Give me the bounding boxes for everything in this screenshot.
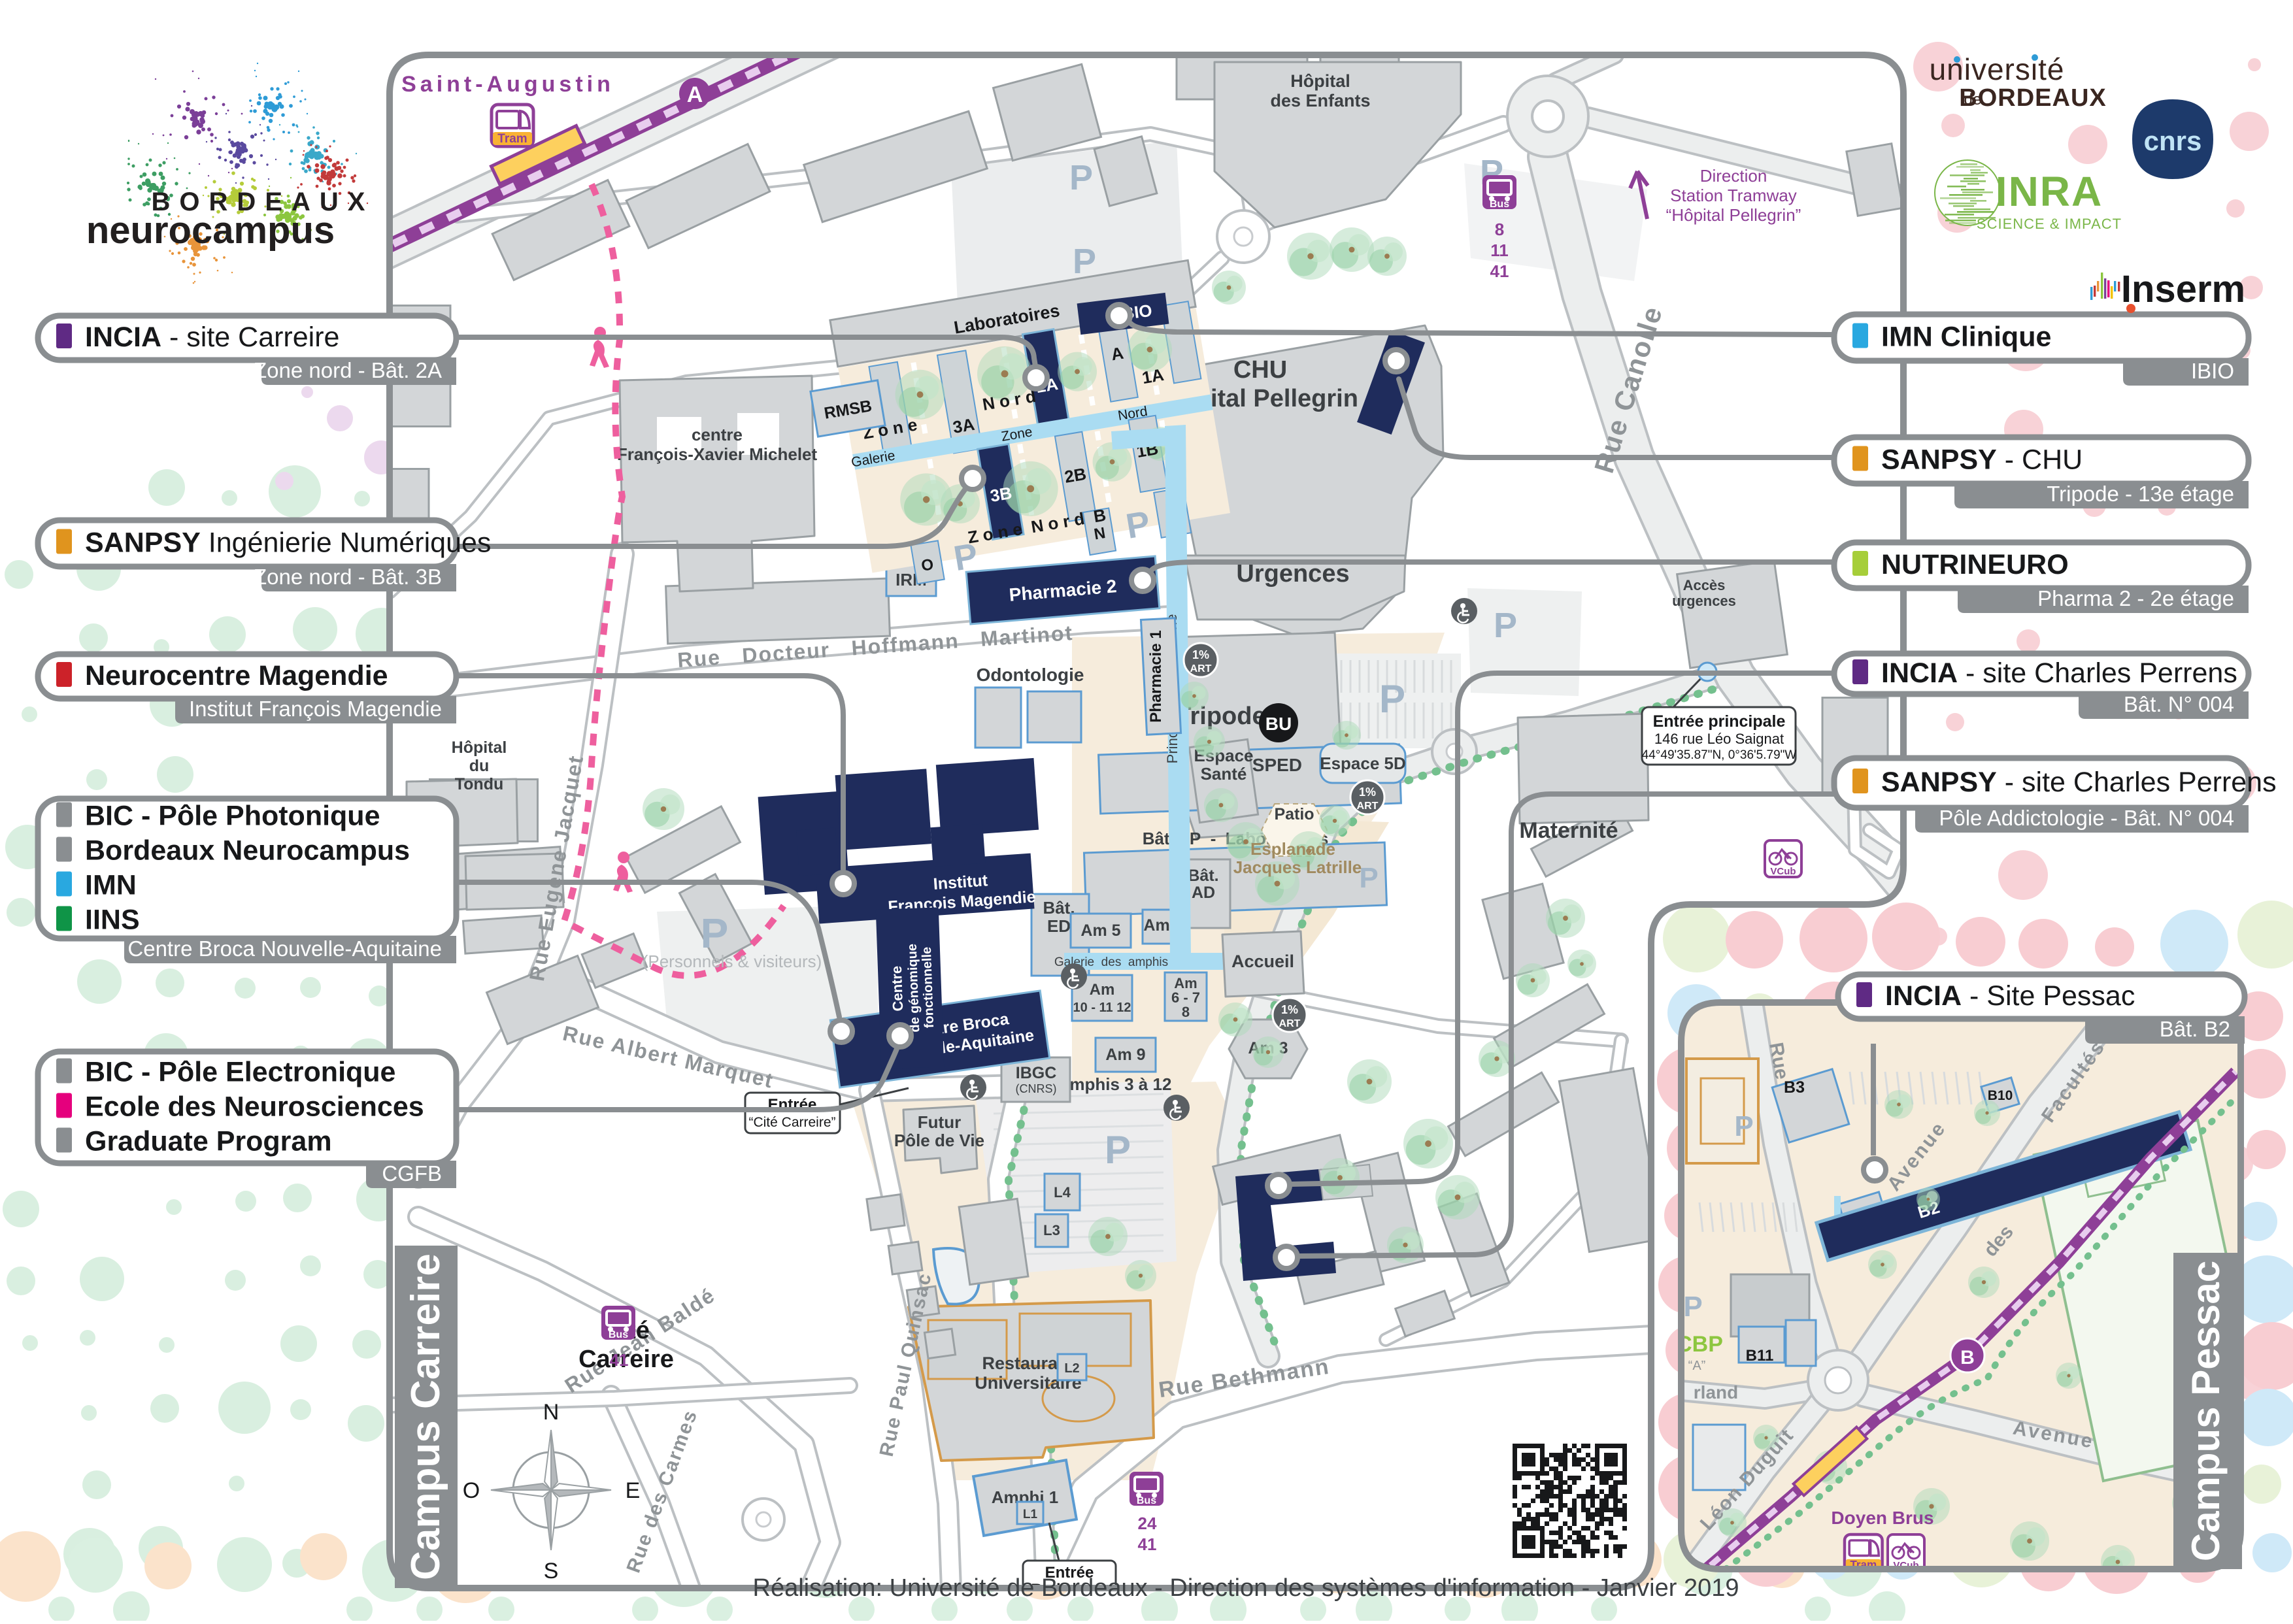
svg-text:Hôpital: Hôpital — [452, 738, 507, 757]
svg-text:8: 8 — [1182, 1004, 1190, 1020]
svg-text:Doyen Brus: Doyen Brus — [1831, 1508, 1933, 1528]
svg-text:Tripode - 13e étage: Tripode - 13e étage — [2047, 482, 2234, 506]
svg-text:L4: L4 — [1054, 1184, 1071, 1201]
svg-text:Neurocentre Magendie: Neurocentre Magendie — [85, 660, 388, 691]
svg-text:Bus: Bus — [609, 1329, 628, 1340]
svg-text:Odontologie: Odontologie — [977, 665, 1084, 685]
svg-text:B11: B11 — [1746, 1347, 1774, 1365]
svg-text:P: P — [1734, 1110, 1753, 1142]
svg-text:François-Xavier Michelet: François-Xavier Michelet — [617, 444, 818, 464]
svg-text:B: B — [1960, 1347, 1975, 1368]
svg-text:Bât. N° 004: Bât. N° 004 — [2124, 692, 2234, 716]
svg-text:(Personnels & visiteurs): (Personnels & visiteurs) — [643, 952, 822, 971]
svg-text:Tondu: Tondu — [455, 775, 504, 793]
svg-text:11: 11 — [1490, 240, 1509, 260]
svg-text:P: P — [1069, 158, 1093, 197]
svg-text:E: E — [626, 1478, 641, 1503]
svg-text:P: P — [1379, 677, 1405, 721]
svg-text:Jacques Latrille: Jacques Latrille — [1233, 857, 1362, 877]
svg-text:Graduate Program: Graduate Program — [85, 1126, 332, 1157]
svg-text:SANPSY - CHU: SANPSY - CHU — [1881, 444, 2083, 476]
svg-text:ART: ART — [1279, 1018, 1301, 1029]
svg-text:ED: ED — [1047, 916, 1071, 936]
svg-text:du: du — [469, 757, 490, 775]
svg-text:1%: 1% — [1281, 1003, 1298, 1016]
svg-text:Patio: Patio — [1274, 805, 1314, 823]
svg-text:S: S — [544, 1559, 559, 1583]
svg-text:Ecole des Neurosciences: Ecole des Neurosciences — [85, 1091, 424, 1123]
svg-text:Amphis 3 à 12: Amphis 3 à 12 — [1058, 1074, 1172, 1094]
svg-text:1%: 1% — [1192, 648, 1209, 661]
svg-text:INCIA - Site Pessac: INCIA - Site Pessac — [1885, 980, 2135, 1012]
svg-text:Am: Am — [1090, 981, 1115, 999]
svg-text:146 rue Léo Saignat: 146 rue Léo Saignat — [1654, 731, 1784, 747]
svg-text:Hôpital: Hôpital — [1290, 71, 1350, 91]
svg-text:INCIA - site Charles Perrens: INCIA - site Charles Perrens — [1881, 657, 2237, 689]
svg-text:SCIENCE & IMPACT: SCIENCE & IMPACT — [1977, 216, 2122, 232]
svg-text:41: 41 — [1490, 261, 1509, 281]
svg-text:P: P — [1494, 606, 1517, 645]
svg-text:Campus Carreire: Campus Carreire — [403, 1253, 448, 1580]
svg-text:Zone nord - Bât. 2A: Zone nord - Bât. 2A — [254, 358, 442, 382]
svg-text:“Hôpital Pellegrin”: “Hôpital Pellegrin” — [1666, 205, 1801, 225]
svg-text:P: P — [1073, 242, 1096, 281]
svg-text:Am 9: Am 9 — [1105, 1046, 1145, 1064]
svg-text:AD: AD — [1192, 884, 1215, 902]
svg-text:rland: rland — [1694, 1382, 1738, 1402]
svg-text:Accueil: Accueil — [1231, 952, 1294, 971]
svg-text:Am 5: Am 5 — [1080, 921, 1120, 940]
svg-text:Pôle Addictologie - Bât. N° 00: Pôle Addictologie - Bât. N° 004 — [1939, 806, 2234, 830]
svg-text:Bus: Bus — [1490, 199, 1509, 210]
svg-text:O: O — [463, 1478, 480, 1503]
svg-text:41: 41 — [1138, 1534, 1157, 1554]
svg-text:VCub: VCub — [1770, 866, 1796, 877]
svg-text:Tram: Tram — [497, 132, 527, 146]
svg-text:P: P — [1105, 1128, 1131, 1172]
svg-text:Esplanade: Esplanade — [1250, 839, 1335, 859]
svg-text:BIC - Pôle Electronique: BIC - Pôle Electronique — [85, 1057, 395, 1088]
svg-text:Bus: Bus — [1137, 1495, 1156, 1506]
svg-text:Station Tramway: Station Tramway — [1670, 186, 1797, 205]
svg-text:Pharmacie 1: Pharmacie 1 — [1147, 630, 1165, 722]
svg-text:Zone nord - Bât. 3B: Zone nord - Bât. 3B — [254, 565, 442, 589]
svg-text:SANPSY Ingénierie Numériques: SANPSY Ingénierie Numériques — [85, 527, 491, 559]
svg-text:1A: 1A — [1141, 365, 1165, 388]
svg-text:P: P — [1359, 862, 1378, 894]
svg-text:1%: 1% — [1359, 786, 1376, 799]
svg-text:44°49'35.87"N, 0°36'5.79"W: 44°49'35.87"N, 0°36'5.79"W — [1642, 748, 1797, 762]
svg-text:Réalisation: Université de Bor: Réalisation: Université de Bordeaux - Di… — [753, 1574, 1739, 1602]
svg-text:P: P — [701, 910, 729, 957]
svg-text:Centre: Centre — [888, 965, 906, 1012]
svg-text:Futur: Futur — [918, 1112, 961, 1132]
svg-text:Entrée principale: Entrée principale — [1653, 712, 1786, 731]
svg-text:NUTRINEURO: NUTRINEURO — [1881, 549, 2069, 580]
svg-text:8: 8 — [1495, 220, 1504, 239]
svg-text:BORDEAUX: BORDEAUX — [1959, 84, 2106, 112]
svg-text:41: 41 — [610, 1350, 629, 1370]
svg-text:“A”: “A” — [1688, 1359, 1706, 1373]
svg-text:L2: L2 — [1064, 1361, 1079, 1376]
svg-text:des Enfants: des Enfants — [1270, 91, 1370, 110]
svg-text:Institut: Institut — [933, 871, 989, 893]
svg-text:ART: ART — [1190, 663, 1212, 674]
svg-text:BIC - Pôle Photonique: BIC - Pôle Photonique — [85, 801, 380, 832]
svg-text:(CNRS): (CNRS) — [1016, 1082, 1057, 1095]
svg-text:Pharma 2 - 2e étage: Pharma 2 - 2e étage — [2037, 586, 2234, 610]
svg-text:Bât.: Bât. — [1188, 867, 1218, 885]
svg-text:IBGC: IBGC — [1016, 1064, 1057, 1082]
svg-text:CHU: CHU — [1233, 356, 1287, 384]
svg-text:Inserm: Inserm — [2121, 268, 2245, 310]
svg-text:centre: centre — [692, 425, 743, 444]
svg-text:Santé: Santé — [1201, 764, 1247, 784]
svg-text:Pôle de Vie: Pôle de Vie — [894, 1131, 984, 1150]
svg-text:université: université — [1930, 52, 2065, 86]
svg-text:10 - 11 12: 10 - 11 12 — [1073, 1001, 1131, 1015]
svg-text:Campus Pessac: Campus Pessac — [2184, 1261, 2228, 1561]
svg-text:IMN Clinique: IMN Clinique — [1881, 322, 2051, 353]
svg-text:neurocampus: neurocampus — [86, 209, 335, 252]
svg-text:fonctionnelle: fonctionnelle — [920, 946, 937, 1028]
svg-text:“Cité Carreire”: “Cité Carreire” — [748, 1115, 835, 1130]
svg-text:INCIA - site Carreire: INCIA - site Carreire — [85, 322, 339, 353]
svg-text:A: A — [687, 82, 703, 107]
svg-text:IBIO: IBIO — [2191, 359, 2234, 383]
svg-text:24: 24 — [1138, 1514, 1157, 1533]
svg-text:Espace 5D: Espace 5D — [1320, 754, 1406, 773]
svg-text:cnrs: cnrs — [2144, 125, 2202, 156]
svg-text:L3: L3 — [1043, 1222, 1060, 1238]
svg-text:Accès: Accès — [1683, 577, 1726, 593]
svg-text:Direction: Direction — [1700, 166, 1767, 186]
svg-text:SANPSY - site Charles Perrens: SANPSY - site Charles Perrens — [1881, 767, 2277, 798]
svg-text:N: N — [543, 1400, 560, 1425]
svg-text:2B: 2B — [1063, 464, 1088, 487]
svg-text:B3: B3 — [1784, 1078, 1805, 1097]
svg-text:3A: 3A — [951, 414, 976, 437]
svg-text:Saint-Augustin: Saint-Augustin — [401, 72, 614, 97]
svg-text:ART: ART — [1357, 801, 1379, 812]
svg-text:INRA: INRA — [1996, 168, 2103, 215]
svg-text:Institut François Magendie: Institut François Magendie — [189, 697, 442, 721]
svg-text:3B: 3B — [989, 483, 1014, 506]
svg-text:IINS: IINS — [85, 904, 140, 936]
svg-text:Centre Broca Nouvelle-Aquitain: Centre Broca Nouvelle-Aquitaine — [127, 936, 442, 961]
svg-text:IMN: IMN — [85, 870, 137, 901]
svg-text:Bordeaux Neurocampus: Bordeaux Neurocampus — [85, 835, 410, 867]
svg-text:ISPED: ISPED — [1247, 755, 1302, 775]
svg-text:L1: L1 — [1023, 1508, 1038, 1521]
svg-text:P: P — [1683, 1291, 1702, 1323]
svg-text:Maternité: Maternité — [1519, 818, 1618, 843]
svg-text:urgences: urgences — [1672, 593, 1736, 609]
svg-text:Bât. B2: Bât. B2 — [2160, 1017, 2230, 1041]
svg-text:CGFB: CGFB — [382, 1161, 442, 1185]
svg-text:BU: BU — [1265, 714, 1292, 734]
